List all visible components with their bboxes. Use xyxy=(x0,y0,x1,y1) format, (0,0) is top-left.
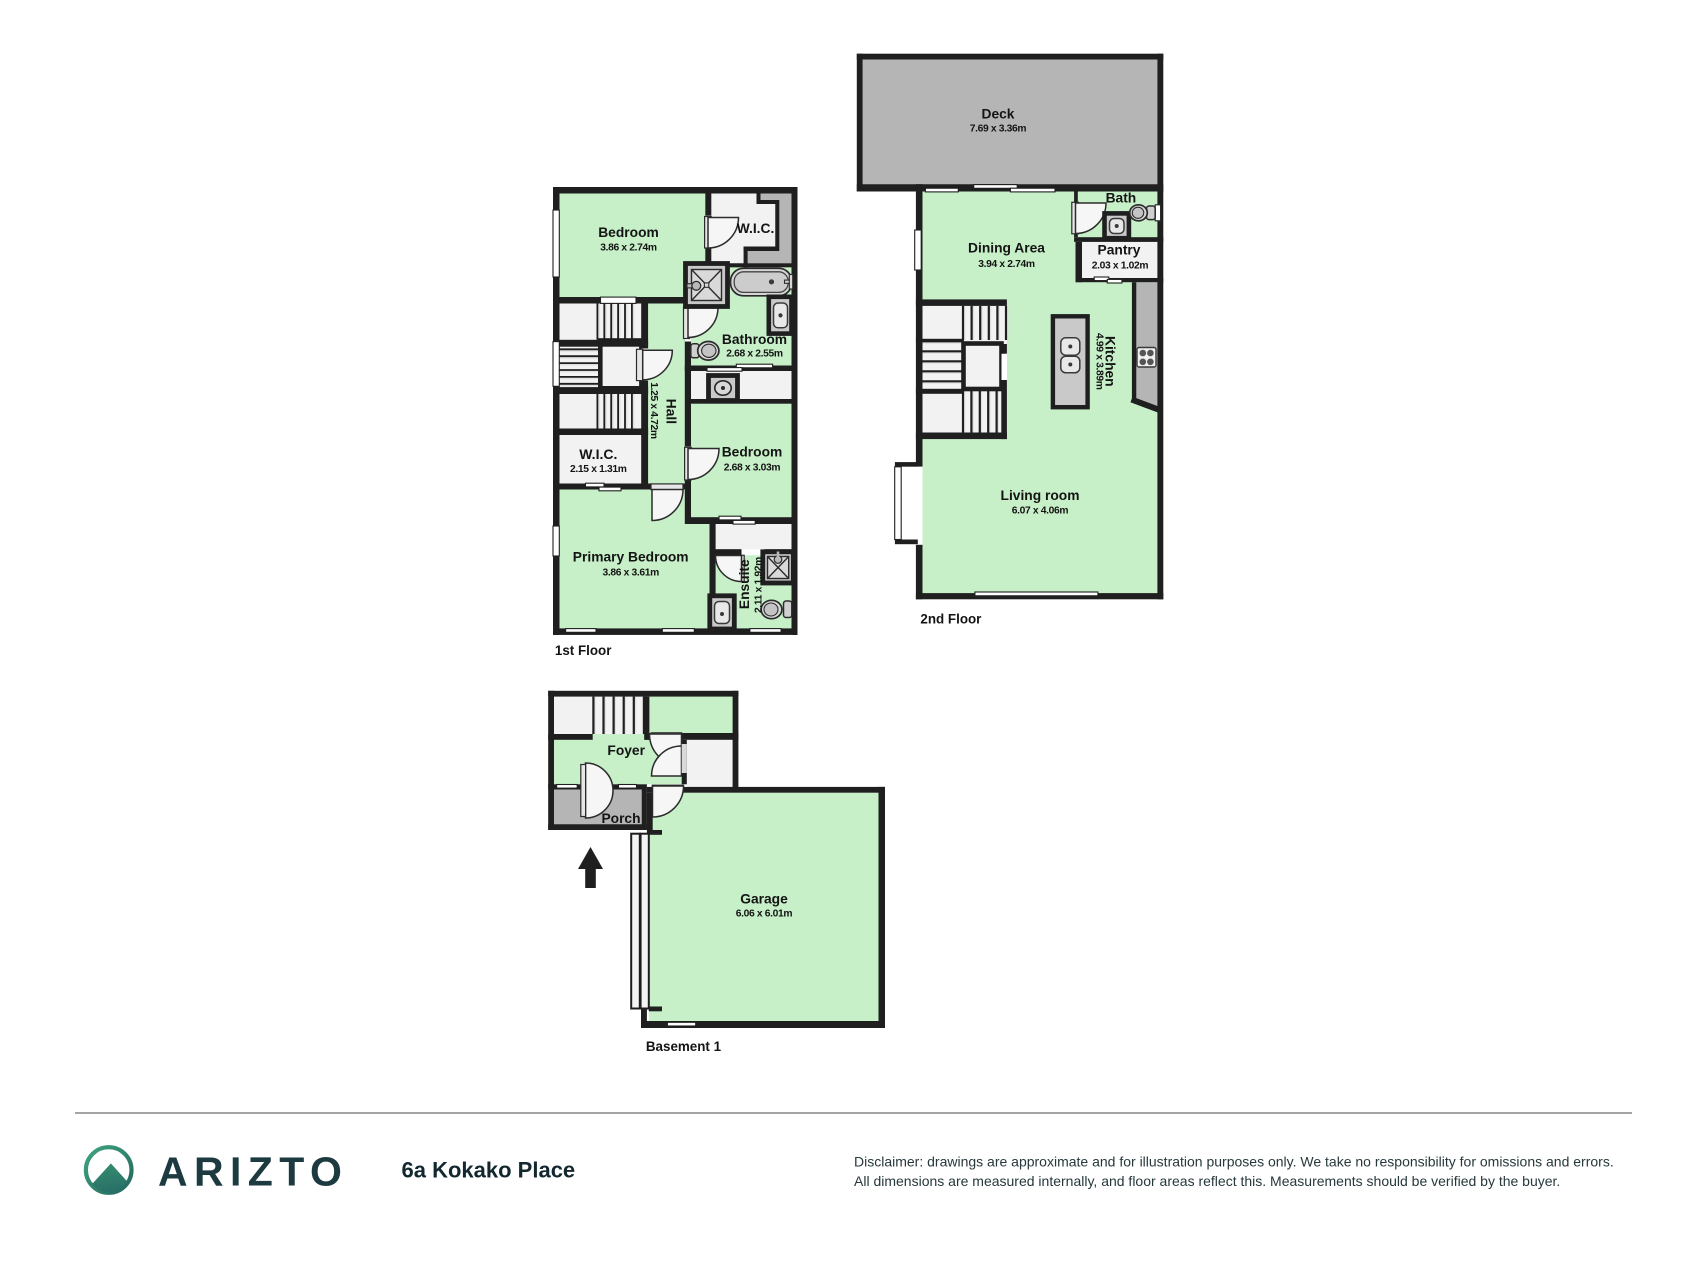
svg-text:Primary Bedroom: Primary Bedroom xyxy=(573,549,689,564)
svg-text:Disclaimer: drawings are appro: Disclaimer: drawings are approximate and… xyxy=(854,1154,1614,1170)
svg-text:6.06 x 6.01m: 6.06 x 6.01m xyxy=(736,909,793,920)
svg-text:3.94 x 2.74m: 3.94 x 2.74m xyxy=(978,259,1035,270)
svg-text:Basement 1: Basement 1 xyxy=(646,1039,722,1054)
svg-text:Ensuite: Ensuite xyxy=(737,559,752,609)
svg-text:ARIZTO: ARIZTO xyxy=(158,1149,348,1195)
svg-text:2nd Floor: 2nd Floor xyxy=(920,612,982,627)
svg-text:Deck: Deck xyxy=(982,106,1015,121)
svg-text:Garage: Garage xyxy=(740,892,788,907)
svg-text:Dining Area: Dining Area xyxy=(968,241,1045,256)
svg-text:W.I.C.: W.I.C. xyxy=(579,446,617,462)
svg-text:Bathroom: Bathroom xyxy=(722,332,787,347)
svg-text:7.69 x 3.36m: 7.69 x 3.36m xyxy=(970,124,1027,135)
svg-text:6a Kokako Place: 6a Kokako Place xyxy=(402,1157,576,1182)
svg-text:All dimensions are measured in: All dimensions are measured internally, … xyxy=(854,1173,1560,1189)
svg-text:2.68 x 3.03m: 2.68 x 3.03m xyxy=(724,463,781,474)
svg-text:Pantry: Pantry xyxy=(1098,243,1141,258)
svg-text:Bath: Bath xyxy=(1106,190,1137,205)
svg-text:1.25 x 4.72m: 1.25 x 4.72m xyxy=(648,382,659,439)
svg-text:Foyer: Foyer xyxy=(607,743,645,758)
svg-text:W.I.C.: W.I.C. xyxy=(737,221,775,236)
svg-text:Bedroom: Bedroom xyxy=(598,225,659,240)
svg-text:4.99 x 3.89m: 4.99 x 3.89m xyxy=(1093,333,1104,390)
svg-text:3.86 x 3.61m: 3.86 x 3.61m xyxy=(602,568,659,579)
svg-text:2.68 x 2.55m: 2.68 x 2.55m xyxy=(726,348,783,359)
svg-text:Living room: Living room xyxy=(1001,488,1080,503)
svg-text:2.03 x 1.02m: 2.03 x 1.02m xyxy=(1092,261,1149,272)
svg-text:2.15 x 1.31m: 2.15 x 1.31m xyxy=(570,464,627,475)
svg-text:3.86 x 2.74m: 3.86 x 2.74m xyxy=(600,243,657,254)
svg-text:6.07 x 4.06m: 6.07 x 4.06m xyxy=(1012,506,1069,517)
svg-text:Bedroom: Bedroom xyxy=(722,445,783,460)
svg-text:Porch: Porch xyxy=(601,811,640,826)
svg-text:2.11 x 1.92m: 2.11 x 1.92m xyxy=(753,557,764,613)
svg-text:1st Floor: 1st Floor xyxy=(555,643,612,658)
svg-text:Hall: Hall xyxy=(664,399,679,424)
